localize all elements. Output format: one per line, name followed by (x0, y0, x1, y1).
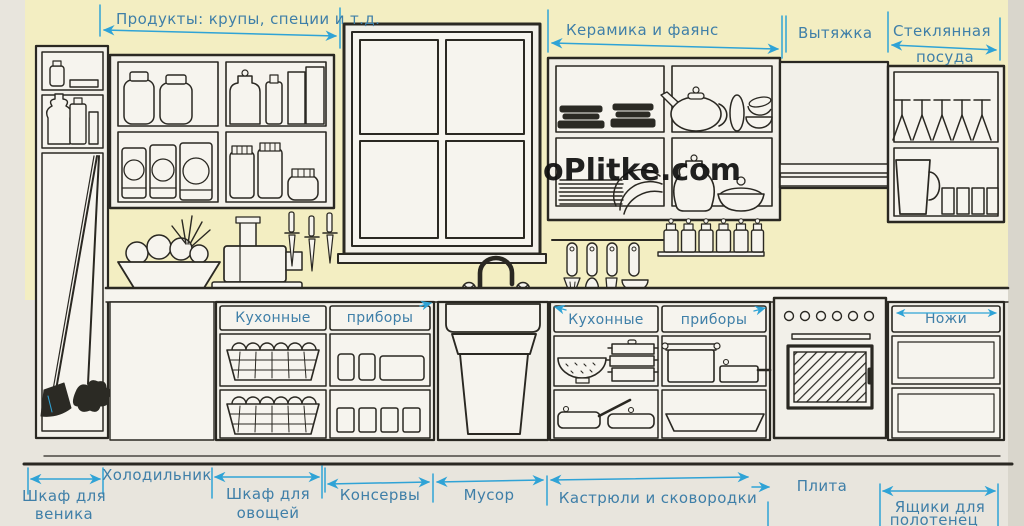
spice-jar (699, 219, 713, 252)
dim-canned-trash-pots: Консервы Мусор Кастрюли и сковородки (325, 468, 757, 507)
window-pane (360, 40, 438, 134)
label-vegetables-2: овощей (237, 504, 300, 522)
canisters (122, 143, 212, 200)
label-towels-2: полотенец (890, 511, 979, 526)
label-glassware-2: посуда (916, 48, 974, 66)
label-trash: Мусор (464, 486, 515, 504)
label-left-kitchen: Кухонные (235, 310, 310, 326)
window-pane (360, 141, 438, 238)
sink-cabinet (438, 302, 548, 440)
dim-towels: Ящики для полотенец (880, 484, 998, 526)
label-vegetables-1: Шкаф для (226, 485, 310, 503)
label-stove: Плита (797, 477, 848, 495)
upper-cabinet-ceramics (548, 58, 780, 220)
hood-louver (780, 164, 888, 173)
hood-louver (780, 177, 888, 186)
label-ceramics: Керамика и фаянс (566, 21, 719, 39)
stove (774, 298, 886, 438)
label-left-utensils: приборы (347, 310, 413, 326)
window-sill (338, 254, 546, 263)
page-edge (1008, 0, 1024, 526)
label-fridge: Холодильник (102, 466, 212, 484)
spice-jar (734, 219, 748, 252)
oven-handle (792, 334, 870, 339)
dim-stove: Плита (752, 477, 847, 526)
glassware-cabinet (888, 66, 1004, 222)
roasting-tray (666, 414, 764, 431)
spice-jar (717, 219, 731, 252)
label-right-utensils: приборы (681, 312, 747, 328)
spice-jar (664, 219, 678, 252)
refrigerator (110, 302, 214, 440)
diagram-canvas: Продукты: крупы, специи и т.д. Керамика … (0, 0, 1024, 526)
range-hood (780, 62, 888, 188)
spice-jar (682, 219, 696, 252)
label-pots-pans: Кастрюли и сковородки (559, 489, 757, 507)
upper-cabinet-products (110, 55, 334, 208)
window (338, 24, 546, 263)
sink-basin (446, 304, 540, 332)
window-pane (446, 40, 524, 134)
bottles-and-boxes (230, 67, 324, 124)
label-glassware-1: Стеклянная (893, 22, 991, 40)
label-broom-2: веника (35, 505, 93, 523)
dim-broom: Шкаф для веника (22, 468, 106, 523)
broom-cabinet (36, 46, 111, 438)
watermark: oPlitke.com (543, 153, 741, 188)
kitchen-layout-diagram: Продукты: крупы, специи и т.д. Керамика … (0, 0, 1024, 526)
spice-jar (752, 219, 764, 252)
stacked-pots (606, 340, 658, 381)
label-products: Продукты: крупы, специи и т.д. (116, 10, 380, 28)
detergent-bottle (47, 94, 72, 144)
label-broom-1: Шкаф для (22, 487, 106, 505)
two-handle-pot (662, 343, 720, 382)
dim-vegetables: Шкаф для овощей (212, 466, 322, 522)
label-hood: Вытяжка (798, 24, 872, 42)
window-pane (446, 141, 524, 238)
label-right-kitchen: Кухонные (568, 312, 643, 328)
label-canned: Консервы (340, 486, 421, 504)
floor-line (24, 456, 1012, 464)
oven-door (788, 346, 872, 408)
